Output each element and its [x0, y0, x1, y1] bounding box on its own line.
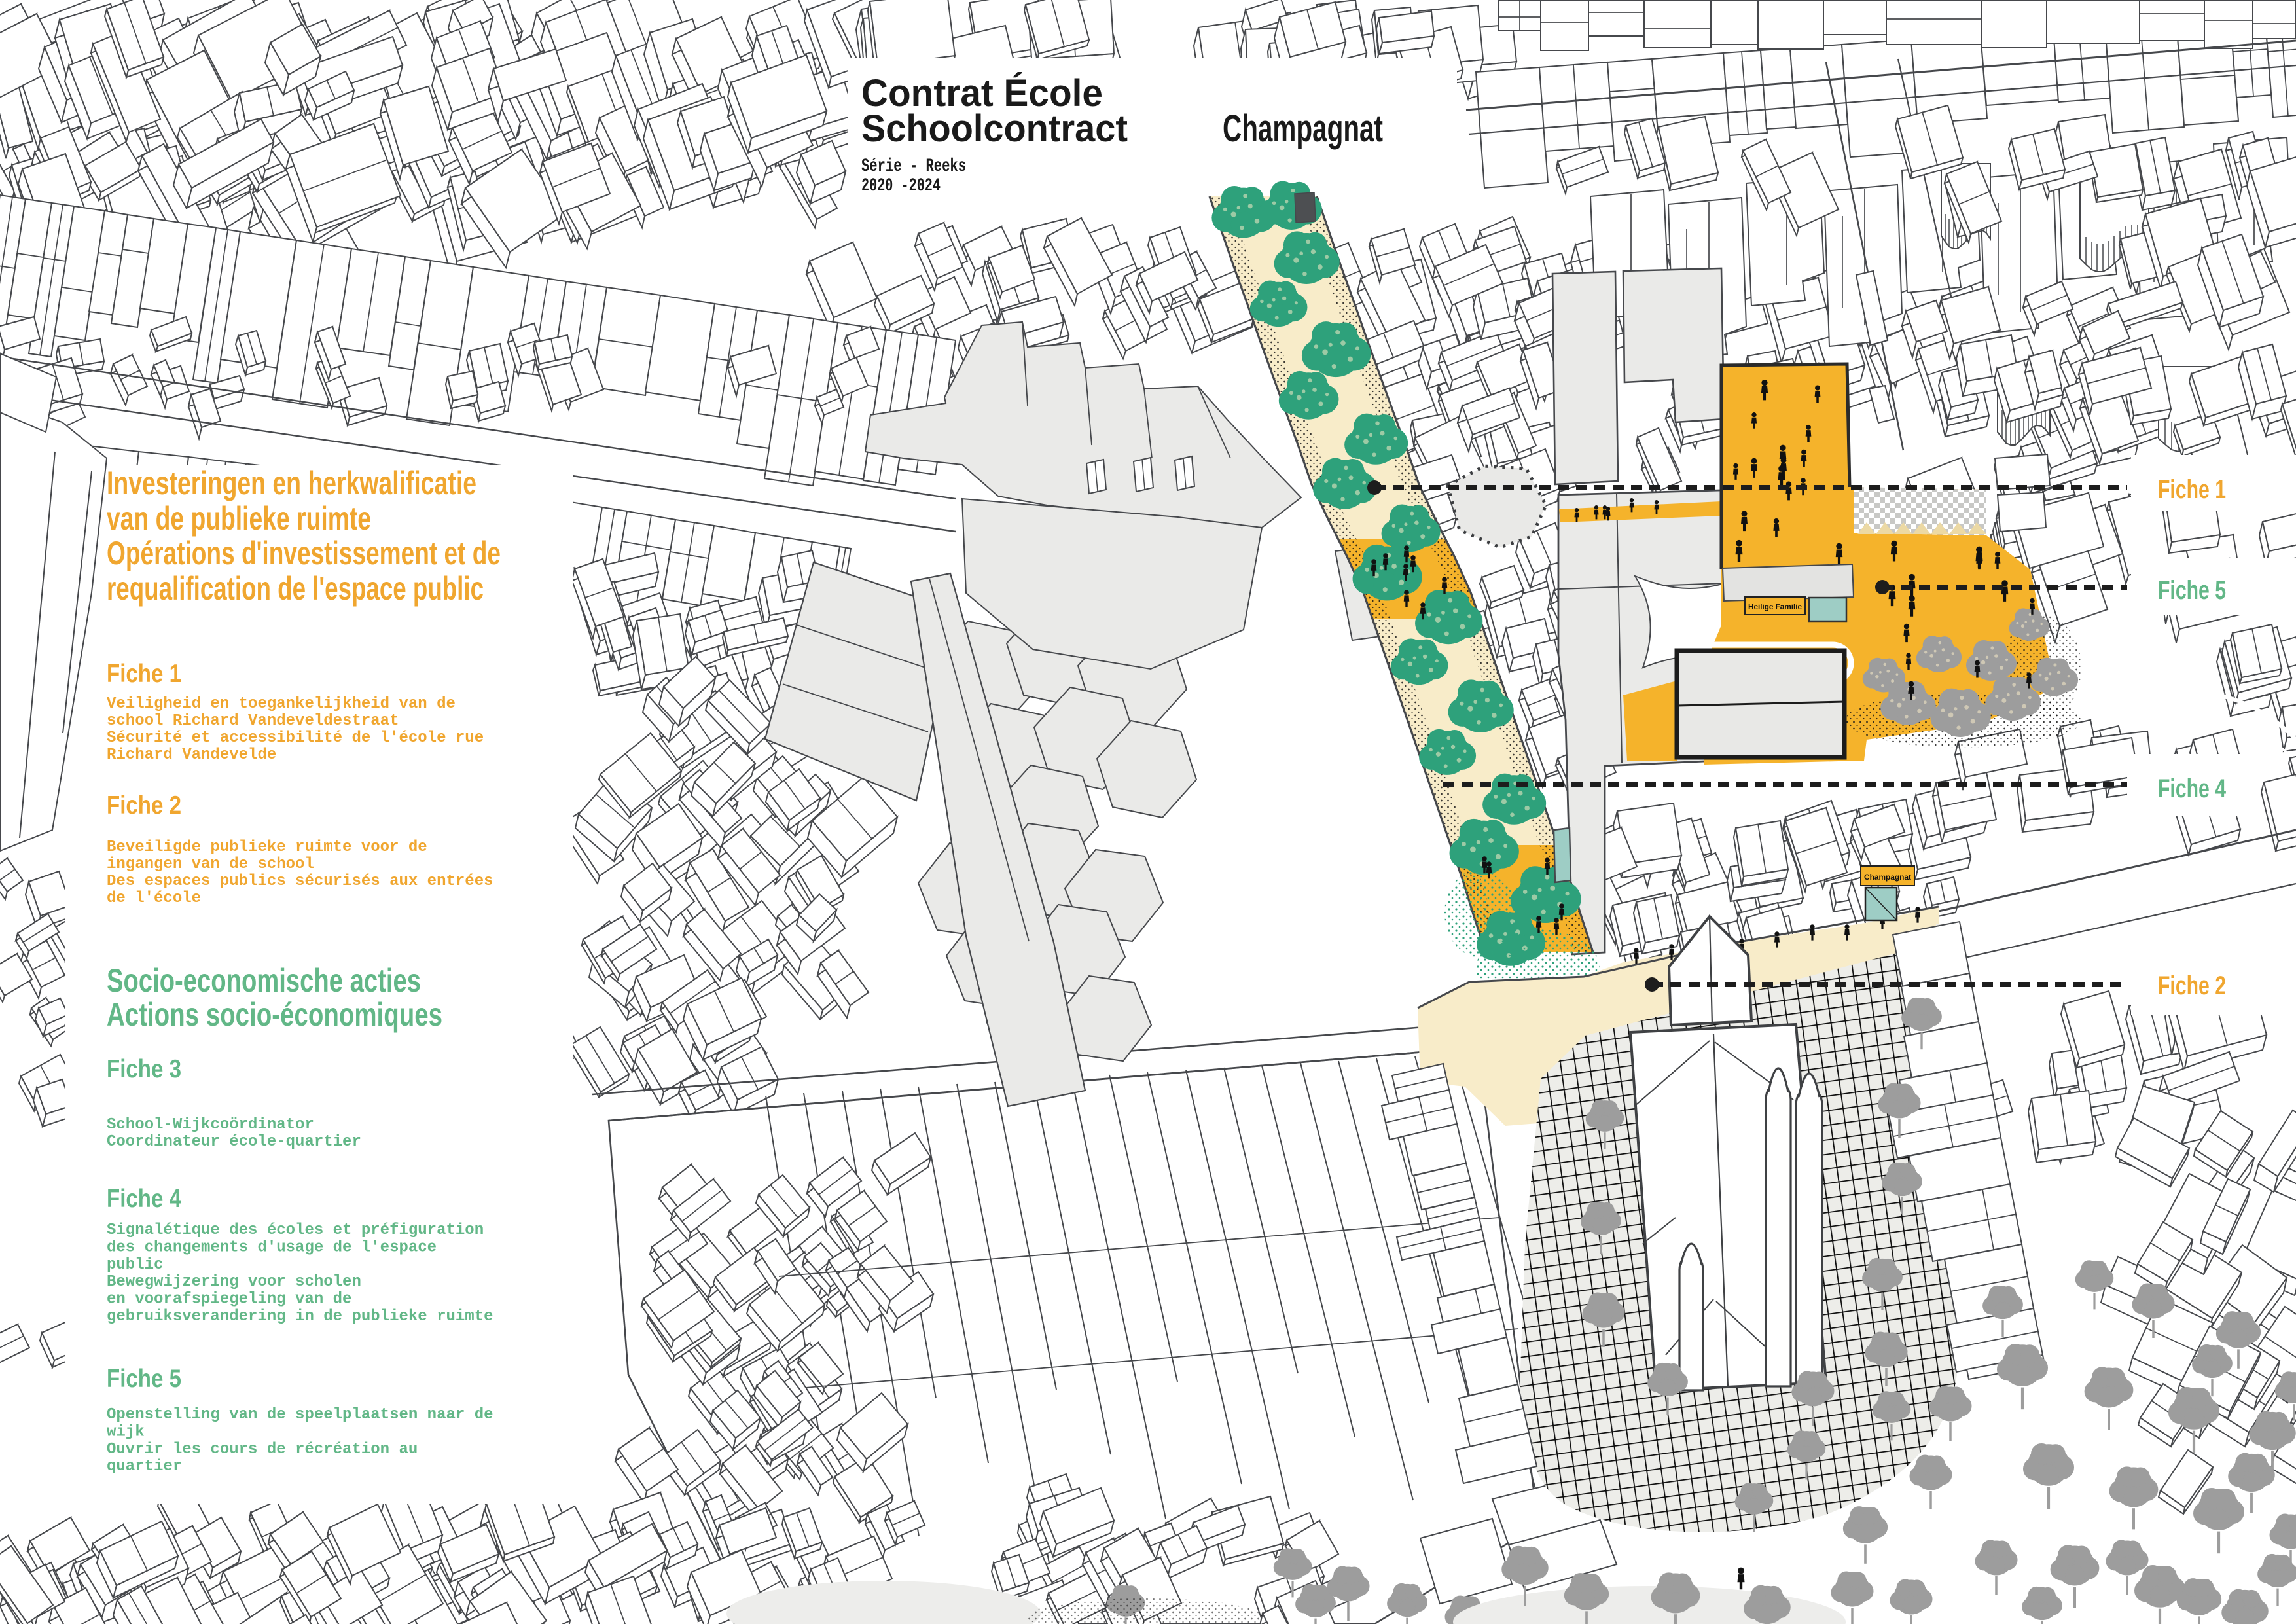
svg-text:School-Wijkcoördinator: School-Wijkcoördinator	[107, 1116, 314, 1134]
svg-text:Fiche 3: Fiche 3	[107, 1055, 181, 1083]
svg-text:Socio-economische acties: Socio-economische acties	[107, 962, 421, 999]
svg-text:2020 -2024: 2020 -2024	[861, 176, 941, 196]
svg-text:Fiche 4: Fiche 4	[107, 1185, 181, 1213]
svg-text:des changements d'usage de l'e: des changements d'usage de l'espace	[107, 1238, 437, 1256]
svg-text:Fiche 1: Fiche 1	[107, 660, 181, 688]
svg-text:Fiche 2: Fiche 2	[2158, 971, 2226, 1000]
svg-text:Champagnat: Champagnat	[1864, 873, 1911, 882]
svg-text:Coordinateur école-quartier: Coordinateur école-quartier	[107, 1133, 361, 1151]
svg-text:Fiche 2: Fiche 2	[107, 791, 181, 820]
svg-text:Schoolcontract: Schoolcontract	[861, 107, 1128, 150]
svg-text:Opérations d'investissement et: Opérations d'investissement et de	[107, 535, 501, 571]
svg-text:Investeringen en herkwalificat: Investeringen en herkwalificatie	[107, 465, 476, 501]
svg-text:school Richard Vandeveldestraa: school Richard Vandeveldestraat	[107, 712, 399, 730]
svg-text:Beveiligde publieke ruimte voo: Beveiligde publieke ruimte voor de	[107, 839, 427, 856]
svg-text:Actions socio-économiques: Actions socio-économiques	[107, 996, 442, 1033]
svg-text:Signalétique des écoles et pré: Signalétique des écoles et préfiguration	[107, 1221, 484, 1239]
svg-text:Ouvrir les cours de récréation: Ouvrir les cours de récréation au	[107, 1441, 418, 1458]
svg-text:Heilige Familie: Heilige Familie	[1748, 602, 1802, 611]
svg-text:Openstelling van de speelplaat: Openstelling van de speelplaatsen naar d…	[107, 1406, 493, 1424]
svg-text:de l'école: de l'école	[107, 890, 201, 907]
svg-text:Série - Reeks: Série - Reeks	[861, 156, 966, 177]
svg-text:Richard Vandevelde: Richard Vandevelde	[107, 746, 276, 764]
svg-text:Fiche 1: Fiche 1	[2158, 475, 2226, 504]
svg-text:Fiche 4: Fiche 4	[2158, 774, 2227, 803]
svg-text:requalification de l'espace pu: requalification de l'espace public	[107, 570, 484, 607]
svg-text:van de publieke ruimte: van de publieke ruimte	[107, 500, 371, 537]
svg-text:ingangen van de school: ingangen van de school	[107, 856, 314, 873]
svg-text:gebruiksverandering in de publ: gebruiksverandering in de publieke ruimt…	[107, 1308, 493, 1326]
svg-text:public: public	[107, 1256, 163, 1274]
svg-text:Champagnat: Champagnat	[1223, 107, 1383, 150]
svg-text:Fiche 5: Fiche 5	[107, 1365, 181, 1393]
svg-text:wijk: wijk	[107, 1423, 145, 1441]
svg-text:quartier: quartier	[107, 1458, 182, 1475]
svg-text:Bewegwijzering voor scholen: Bewegwijzering voor scholen	[107, 1273, 361, 1291]
svg-text:Fiche 5: Fiche 5	[2158, 576, 2226, 605]
svg-text:Des espaces publics sécurisés: Des espaces publics sécurisés aux entrée…	[107, 873, 493, 890]
svg-text:Sécurité et accessibilité de l: Sécurité et accessibilité de l'école rue	[107, 729, 484, 747]
svg-text:en voorafspiegeling van de: en voorafspiegeling van de	[107, 1291, 351, 1308]
svg-text:Veiligheid en toegankelijkheid: Veiligheid en toegankelijkheid van de	[107, 695, 456, 713]
